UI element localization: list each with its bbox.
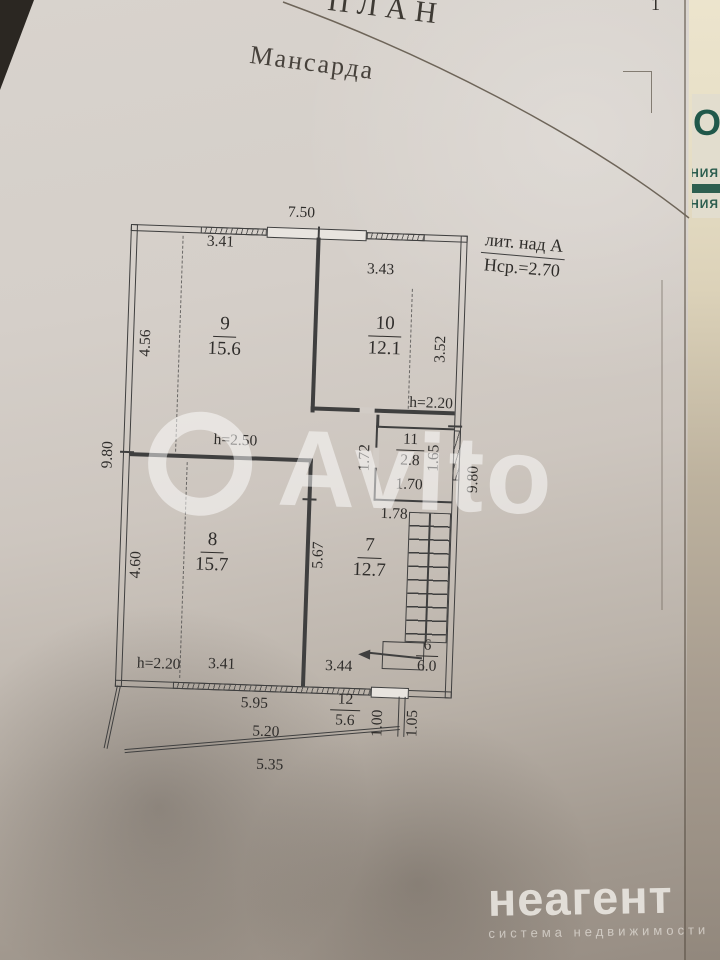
room-number: 12 [330,690,360,711]
dim-bottom-left: 3.41 [179,654,264,675]
dim-left-total: 9.80 [98,416,119,493]
dim-room9-height: 4.56 [136,310,156,375]
neagent-brand-text: неагент [487,872,709,923]
page-number-mark: 1 [651,0,660,15]
dim-top-right: 3.43 [325,259,436,281]
dim-balcony-depth-inner: 1.00 [368,701,388,746]
neagent-watermark: неагент система недвижимости [487,872,709,941]
dim-balcony-outer: 5.35 [222,755,318,776]
room-number: 10 [368,312,402,337]
room-area: 12.1 [341,336,427,361]
room-label-10: 10 12.1 [341,311,428,361]
dim-bottom-mid: 3.44 [307,656,370,676]
room-label-12: 12 5.6 [320,690,371,730]
room-area: 5.6 [320,711,371,731]
dim-balcony-depth-outer: 1.05 [403,700,423,747]
room-number: 9 [213,313,237,338]
dim-room10-height: 3.52 [431,317,451,382]
window-top-right [367,232,425,241]
room-label-9: 9 15.6 [181,312,268,362]
liter-annotation: лит. над А Нср.=2.70 [479,229,567,282]
photographed-floorplan-page: { "photo": { "page_title_partial": "ПЛАН… [0,0,720,960]
room-area: 6.0 [403,657,450,676]
dim-room8-height: 4.60 [126,532,146,597]
dim-bottom-window: 5.95 [210,693,299,714]
avito-watermark-text: Avito [276,404,556,539]
room-label-6: 6 6.0 [403,636,450,676]
room-area: 15.7 [169,552,255,577]
room-area: 15.6 [181,337,267,362]
wall-room9-room10 [311,237,321,412]
avito-watermark: Avito [146,387,671,555]
room-number: 6 [416,636,438,657]
avito-logo-icon [146,410,254,518]
document-frame-corner [623,71,652,113]
dim-balcony-inner: 5.20 [218,721,314,742]
dim-top-left: 3.41 [165,231,276,253]
room-area: 12.7 [329,558,410,583]
